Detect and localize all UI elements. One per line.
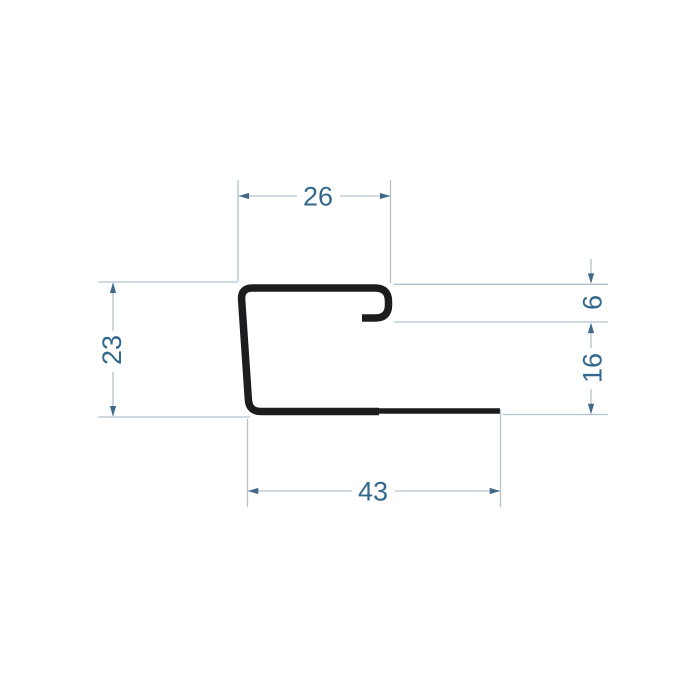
profile-drawing: 26 23 6 16 <box>0 0 700 700</box>
dim-left-height-label: 23 <box>97 335 127 365</box>
right-extension-lines <box>394 284 608 414</box>
arrowhead-up-icon <box>588 323 594 333</box>
arrowhead-down-icon <box>110 406 116 416</box>
dim-bottom-width-label: 43 <box>358 477 388 507</box>
arrowhead-up-icon <box>110 283 116 293</box>
dim-top-width-label: 26 <box>303 182 333 212</box>
dimension-left-height: 23 <box>97 282 250 417</box>
arrowhead-right-icon <box>490 488 500 494</box>
arrowhead-left-icon <box>248 488 258 494</box>
arrowhead-left-icon <box>239 193 249 199</box>
profile-outline <box>242 288 389 412</box>
dimension-bottom-width: 43 <box>248 410 501 507</box>
arrowhead-right-icon <box>380 193 390 199</box>
drawing-canvas: 26 23 6 16 <box>0 0 700 700</box>
arrowhead-down-icon <box>588 404 594 414</box>
dim-lower-right-height-label: 16 <box>578 353 608 383</box>
profile-cross-section <box>242 288 500 412</box>
dimension-top-width: 26 <box>238 180 391 283</box>
dimension-lower-right-height: 16 <box>578 323 608 415</box>
dim-hook-height-label: 6 <box>578 295 608 310</box>
arrowhead-down-icon <box>588 273 594 283</box>
